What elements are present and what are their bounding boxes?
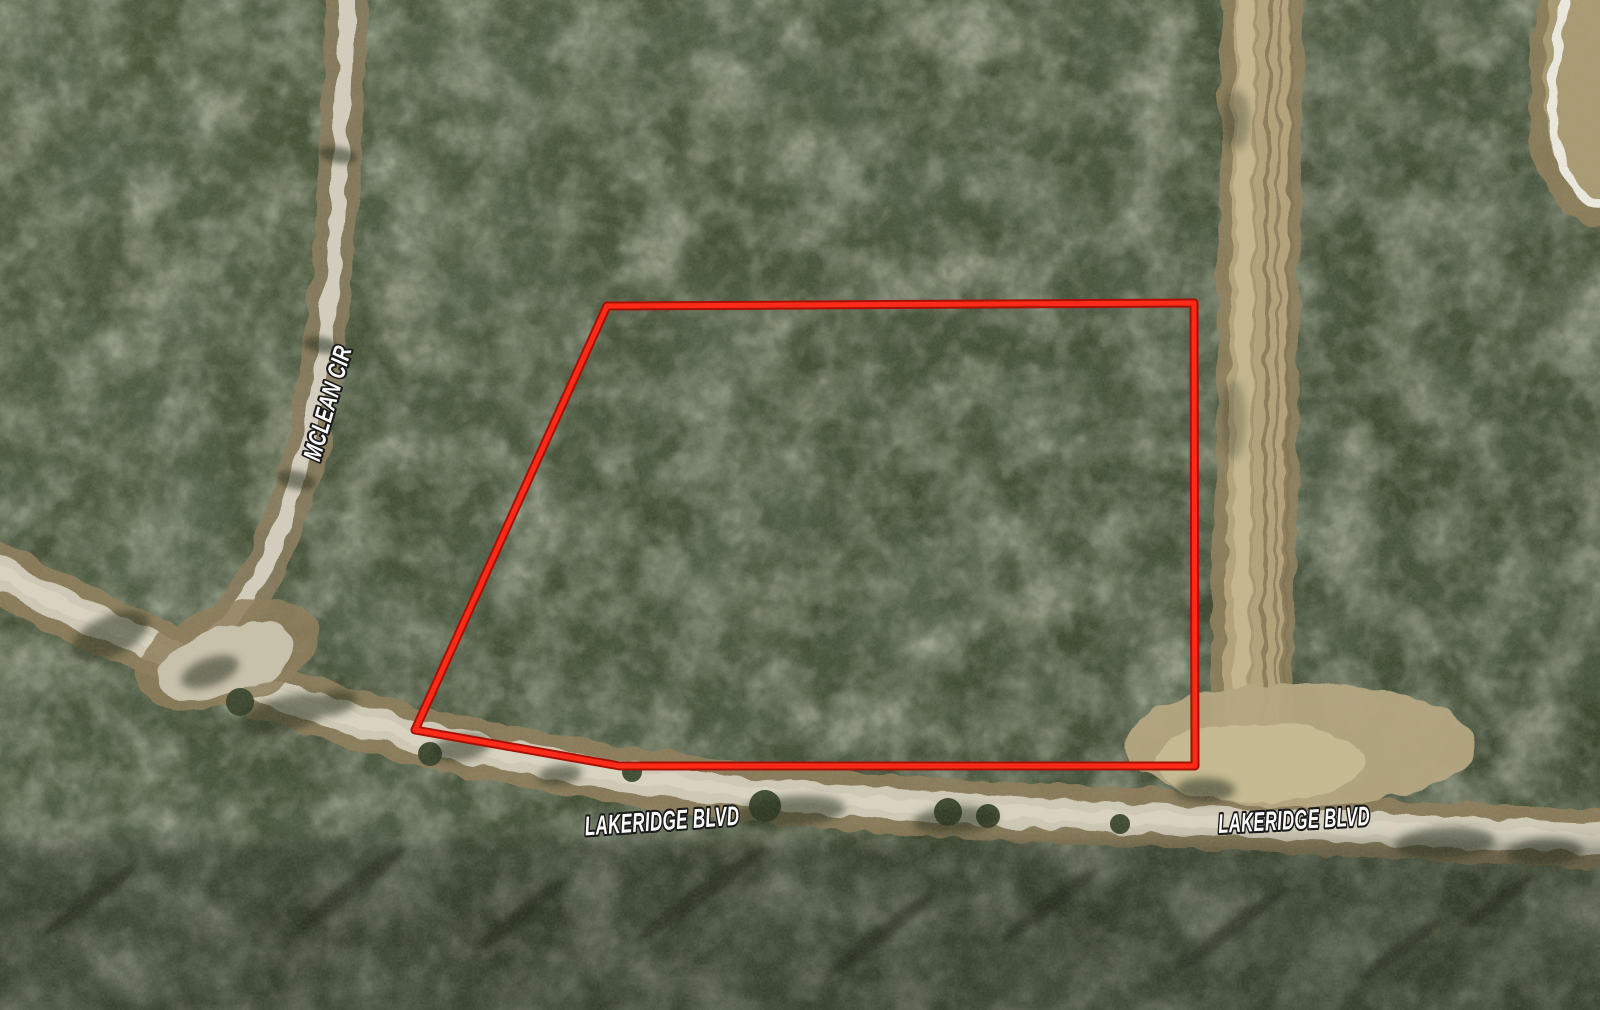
map-canvas[interactable]: MCLEAN CIR LAKERIDGE BLVD LAKERIDGE BLVD <box>0 0 1600 1010</box>
photo-grain <box>0 0 1600 1010</box>
satellite-map-view[interactable]: MCLEAN CIR LAKERIDGE BLVD LAKERIDGE BLVD <box>0 0 1600 1010</box>
